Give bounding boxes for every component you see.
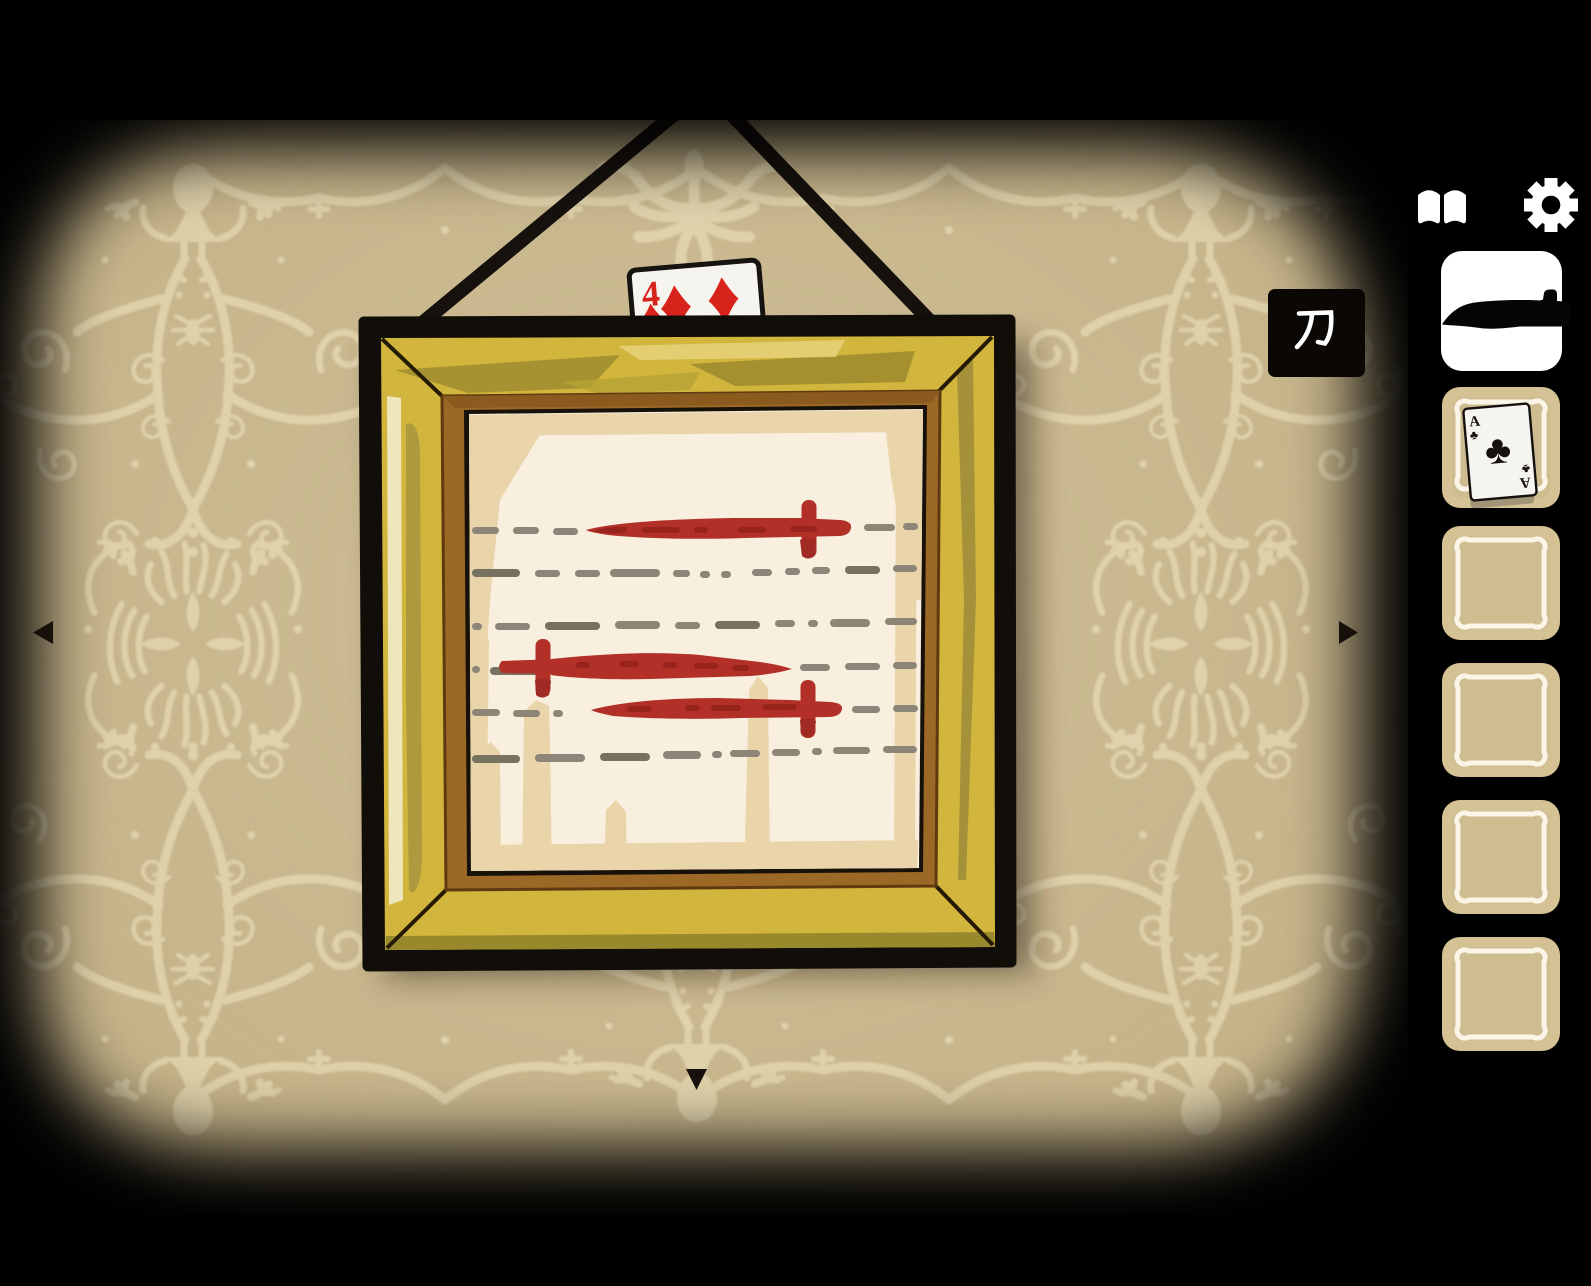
svg-text:♣: ♣	[1483, 427, 1513, 473]
svg-text:♣: ♣	[1521, 461, 1530, 476]
svg-text:♣: ♣	[1469, 428, 1478, 443]
